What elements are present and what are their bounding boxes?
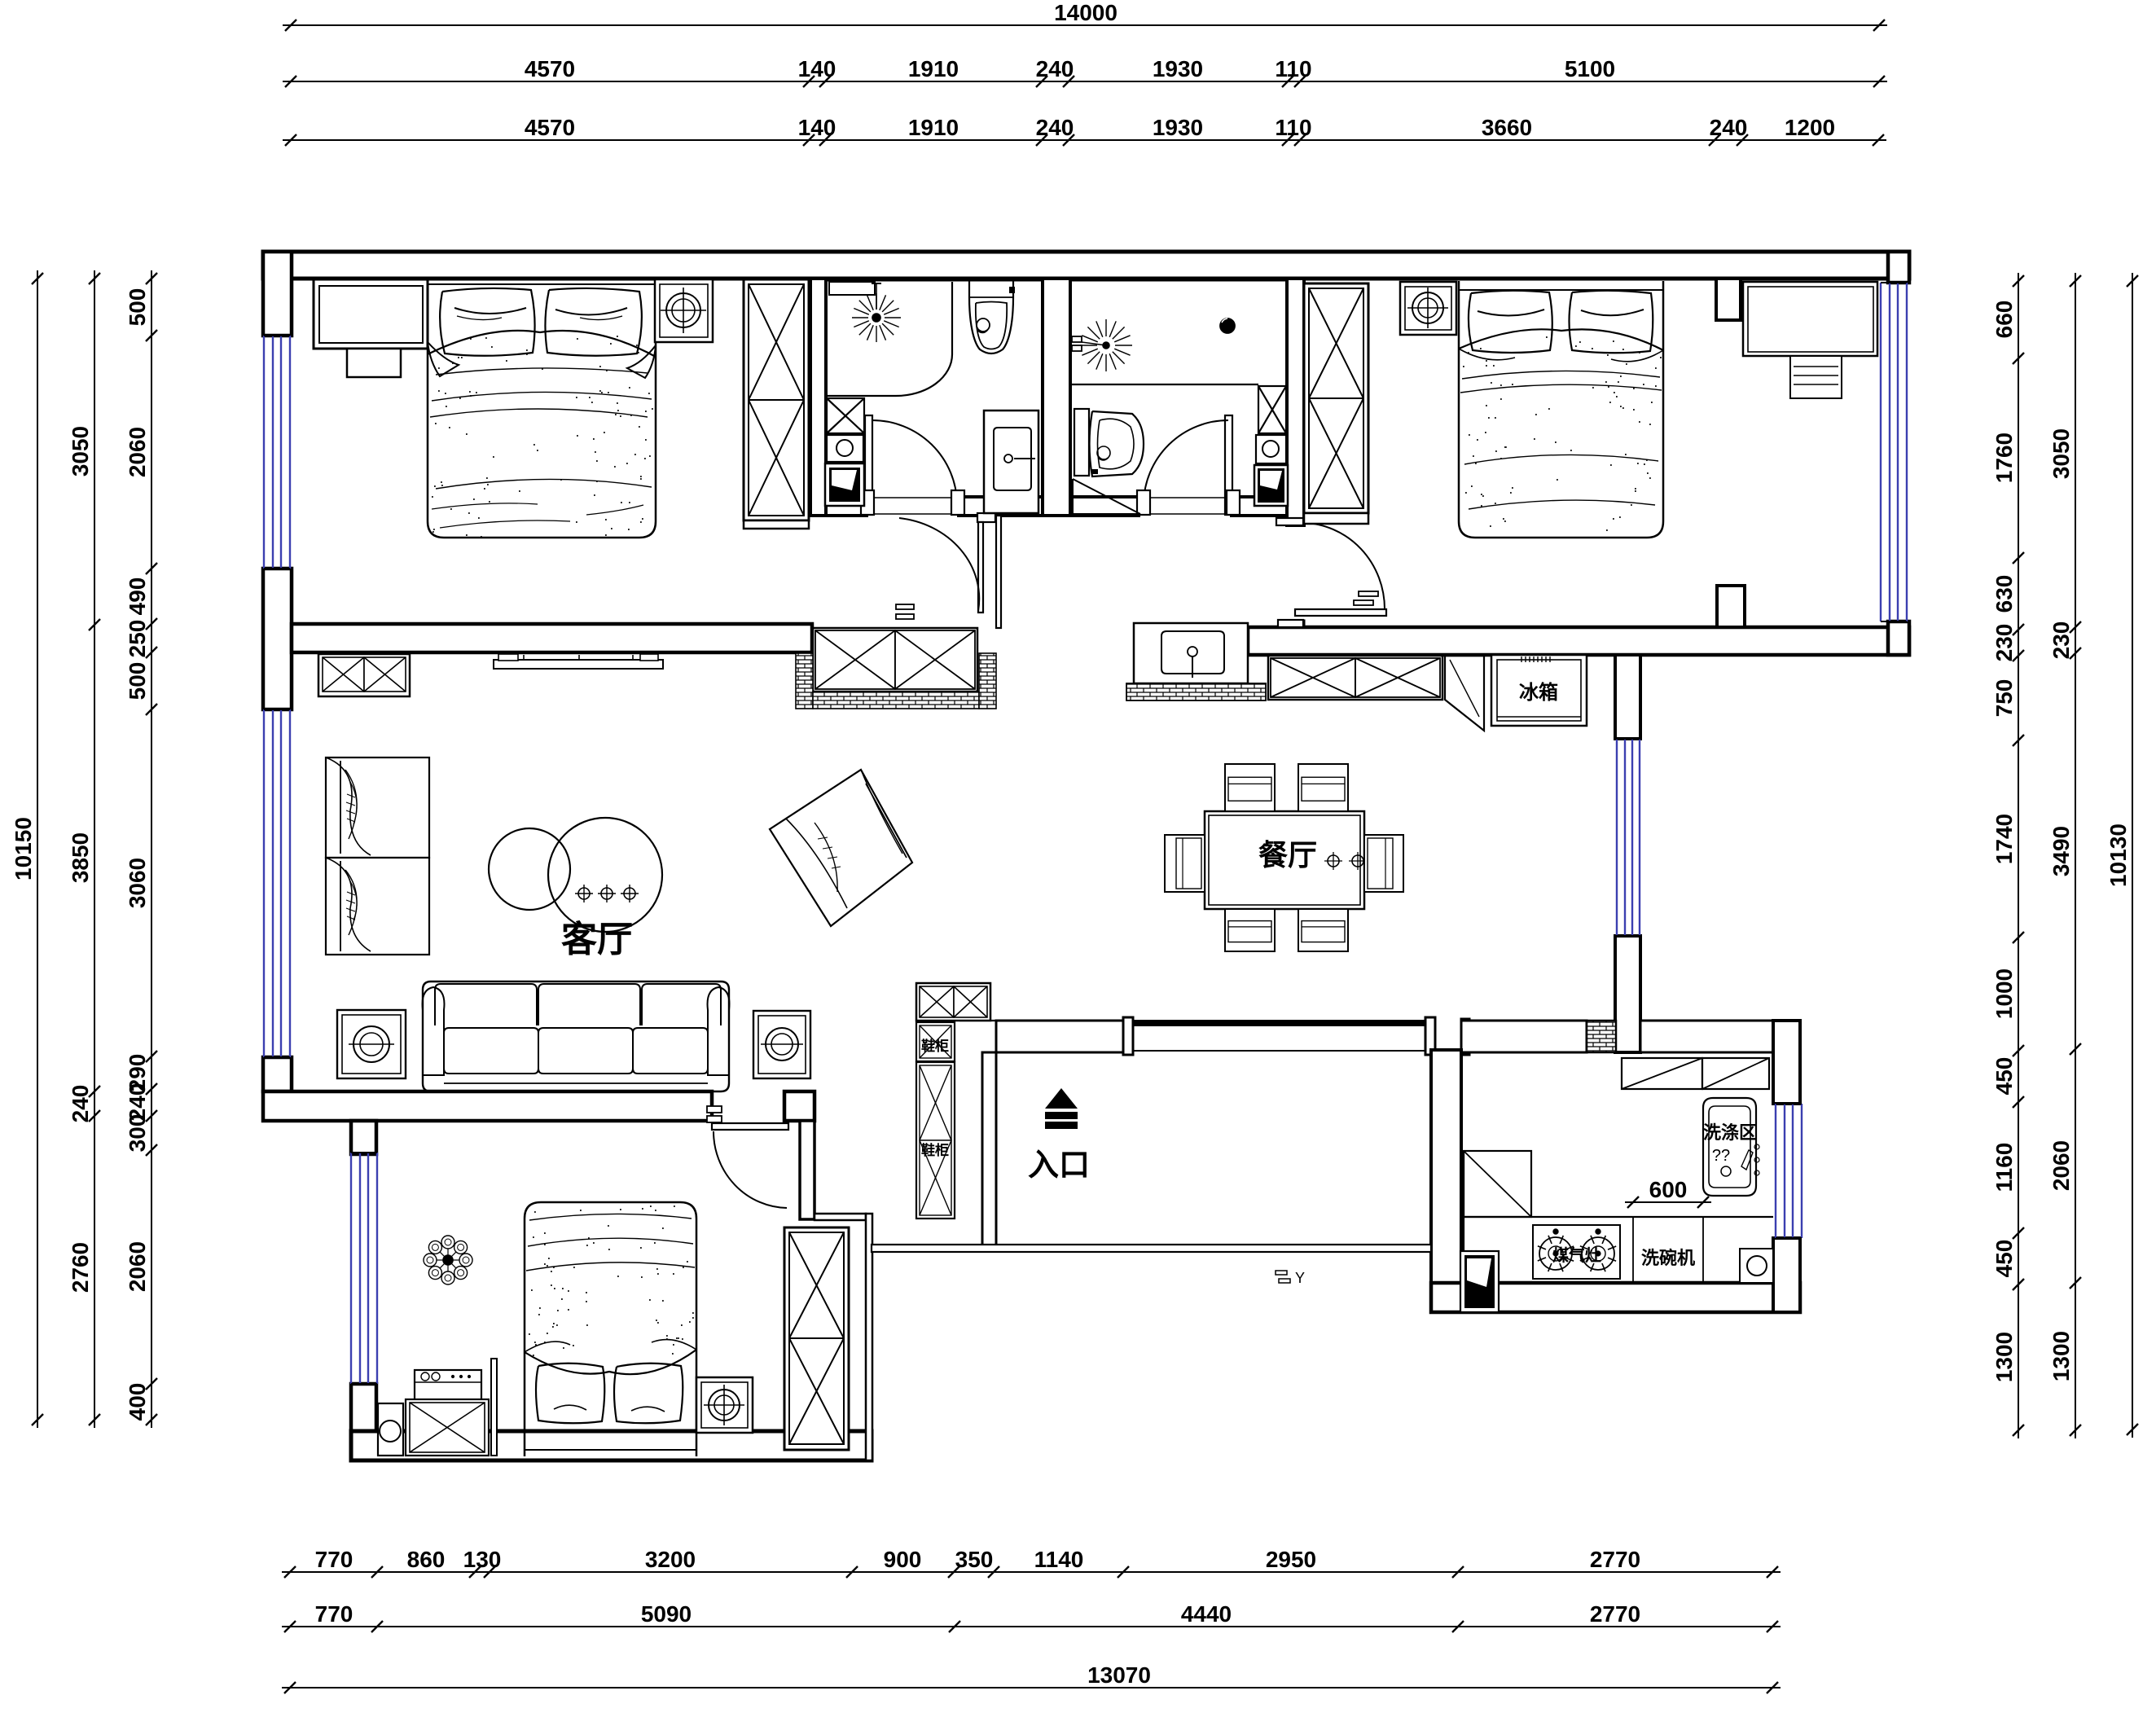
- svg-text:770: 770: [315, 1601, 353, 1627]
- svg-text:660: 660: [1991, 301, 2017, 339]
- svg-text:110: 110: [1275, 115, 1311, 140]
- svg-text:1740: 1740: [1991, 814, 2017, 864]
- svg-text:240: 240: [1036, 115, 1074, 140]
- svg-text:煤气灶: 煤气灶: [1552, 1245, 1601, 1265]
- svg-text:4570: 4570: [525, 56, 575, 81]
- svg-text:770: 770: [315, 1547, 353, 1572]
- svg-text:350: 350: [955, 1547, 994, 1572]
- svg-text:240: 240: [1710, 115, 1748, 140]
- svg-text:860: 860: [407, 1547, 446, 1572]
- svg-text:Y: Y: [1295, 1270, 1305, 1286]
- svg-text:2060: 2060: [125, 427, 150, 477]
- svg-text:3660: 3660: [1482, 115, 1532, 140]
- svg-text:500: 500: [125, 288, 150, 327]
- svg-text:300: 300: [125, 1114, 150, 1153]
- svg-text:冰箱: 冰箱: [1519, 681, 1558, 704]
- svg-text:1930: 1930: [1153, 115, 1203, 140]
- svg-text:鞋柜: 鞋柜: [921, 1142, 949, 1158]
- svg-text:450: 450: [1991, 1057, 2017, 1096]
- svg-text:400: 400: [125, 1383, 150, 1421]
- svg-text:2060: 2060: [2048, 1140, 2074, 1191]
- svg-text:2770: 2770: [1590, 1547, 1640, 1572]
- svg-text:1140: 1140: [1034, 1547, 1084, 1572]
- svg-text:3050: 3050: [2048, 428, 2074, 479]
- svg-text:130: 130: [463, 1547, 502, 1572]
- svg-text:??: ??: [1712, 1147, 1730, 1165]
- svg-text:240: 240: [1036, 56, 1074, 81]
- svg-text:1910: 1910: [908, 115, 959, 140]
- svg-text:450: 450: [1991, 1240, 2017, 1278]
- svg-text:230: 230: [1991, 624, 2017, 662]
- svg-text:240: 240: [68, 1085, 93, 1123]
- svg-text:1300: 1300: [1991, 1332, 2017, 1382]
- svg-text:洗碗机: 洗碗机: [1641, 1248, 1695, 1268]
- svg-text:鞋柜: 鞋柜: [921, 1038, 949, 1054]
- svg-text:600: 600: [1649, 1177, 1688, 1202]
- svg-text:1930: 1930: [1153, 56, 1203, 81]
- svg-text:230: 230: [2048, 621, 2074, 660]
- svg-text:13070: 13070: [1087, 1662, 1151, 1688]
- svg-text:3200: 3200: [645, 1547, 696, 1572]
- svg-text:2950: 2950: [1266, 1547, 1316, 1572]
- svg-text:3850: 3850: [68, 832, 93, 883]
- svg-text:5090: 5090: [641, 1601, 692, 1627]
- svg-text:500: 500: [125, 662, 150, 700]
- svg-text:1200: 1200: [1785, 115, 1835, 140]
- svg-text:10150: 10150: [11, 817, 36, 880]
- svg-text:洗涤区: 洗涤区: [1703, 1122, 1757, 1143]
- svg-text:750: 750: [1991, 679, 2017, 718]
- svg-text:10130: 10130: [2106, 823, 2131, 887]
- svg-text:900: 900: [884, 1547, 922, 1572]
- svg-text:3060: 3060: [125, 858, 150, 908]
- svg-text:2060: 2060: [125, 1241, 150, 1292]
- svg-text:2760: 2760: [68, 1242, 93, 1293]
- svg-text:3050: 3050: [68, 426, 93, 476]
- svg-text:140: 140: [798, 56, 836, 81]
- svg-text:140: 140: [798, 115, 836, 140]
- svg-text:250: 250: [125, 620, 150, 658]
- svg-text:490: 490: [125, 577, 150, 616]
- svg-text:2770: 2770: [1590, 1601, 1640, 1627]
- svg-text:1910: 1910: [908, 56, 959, 81]
- svg-text:110: 110: [1275, 56, 1311, 81]
- svg-text:3490: 3490: [2048, 826, 2074, 876]
- svg-text:餐厅: 餐厅: [1258, 838, 1317, 872]
- svg-text:4570: 4570: [525, 115, 575, 140]
- svg-text:1300: 1300: [2048, 1331, 2074, 1381]
- svg-text:客厅: 客厅: [561, 920, 633, 960]
- svg-text:5100: 5100: [1565, 56, 1615, 81]
- svg-text:1760: 1760: [1991, 433, 2017, 483]
- svg-text:14000: 14000: [1054, 0, 1118, 25]
- svg-text:入口: 入口: [1028, 1148, 1090, 1183]
- svg-text:4440: 4440: [1181, 1601, 1232, 1627]
- svg-text:630: 630: [1991, 575, 2017, 613]
- svg-text:1000: 1000: [1991, 968, 2017, 1019]
- svg-text:1160: 1160: [1991, 1143, 2017, 1192]
